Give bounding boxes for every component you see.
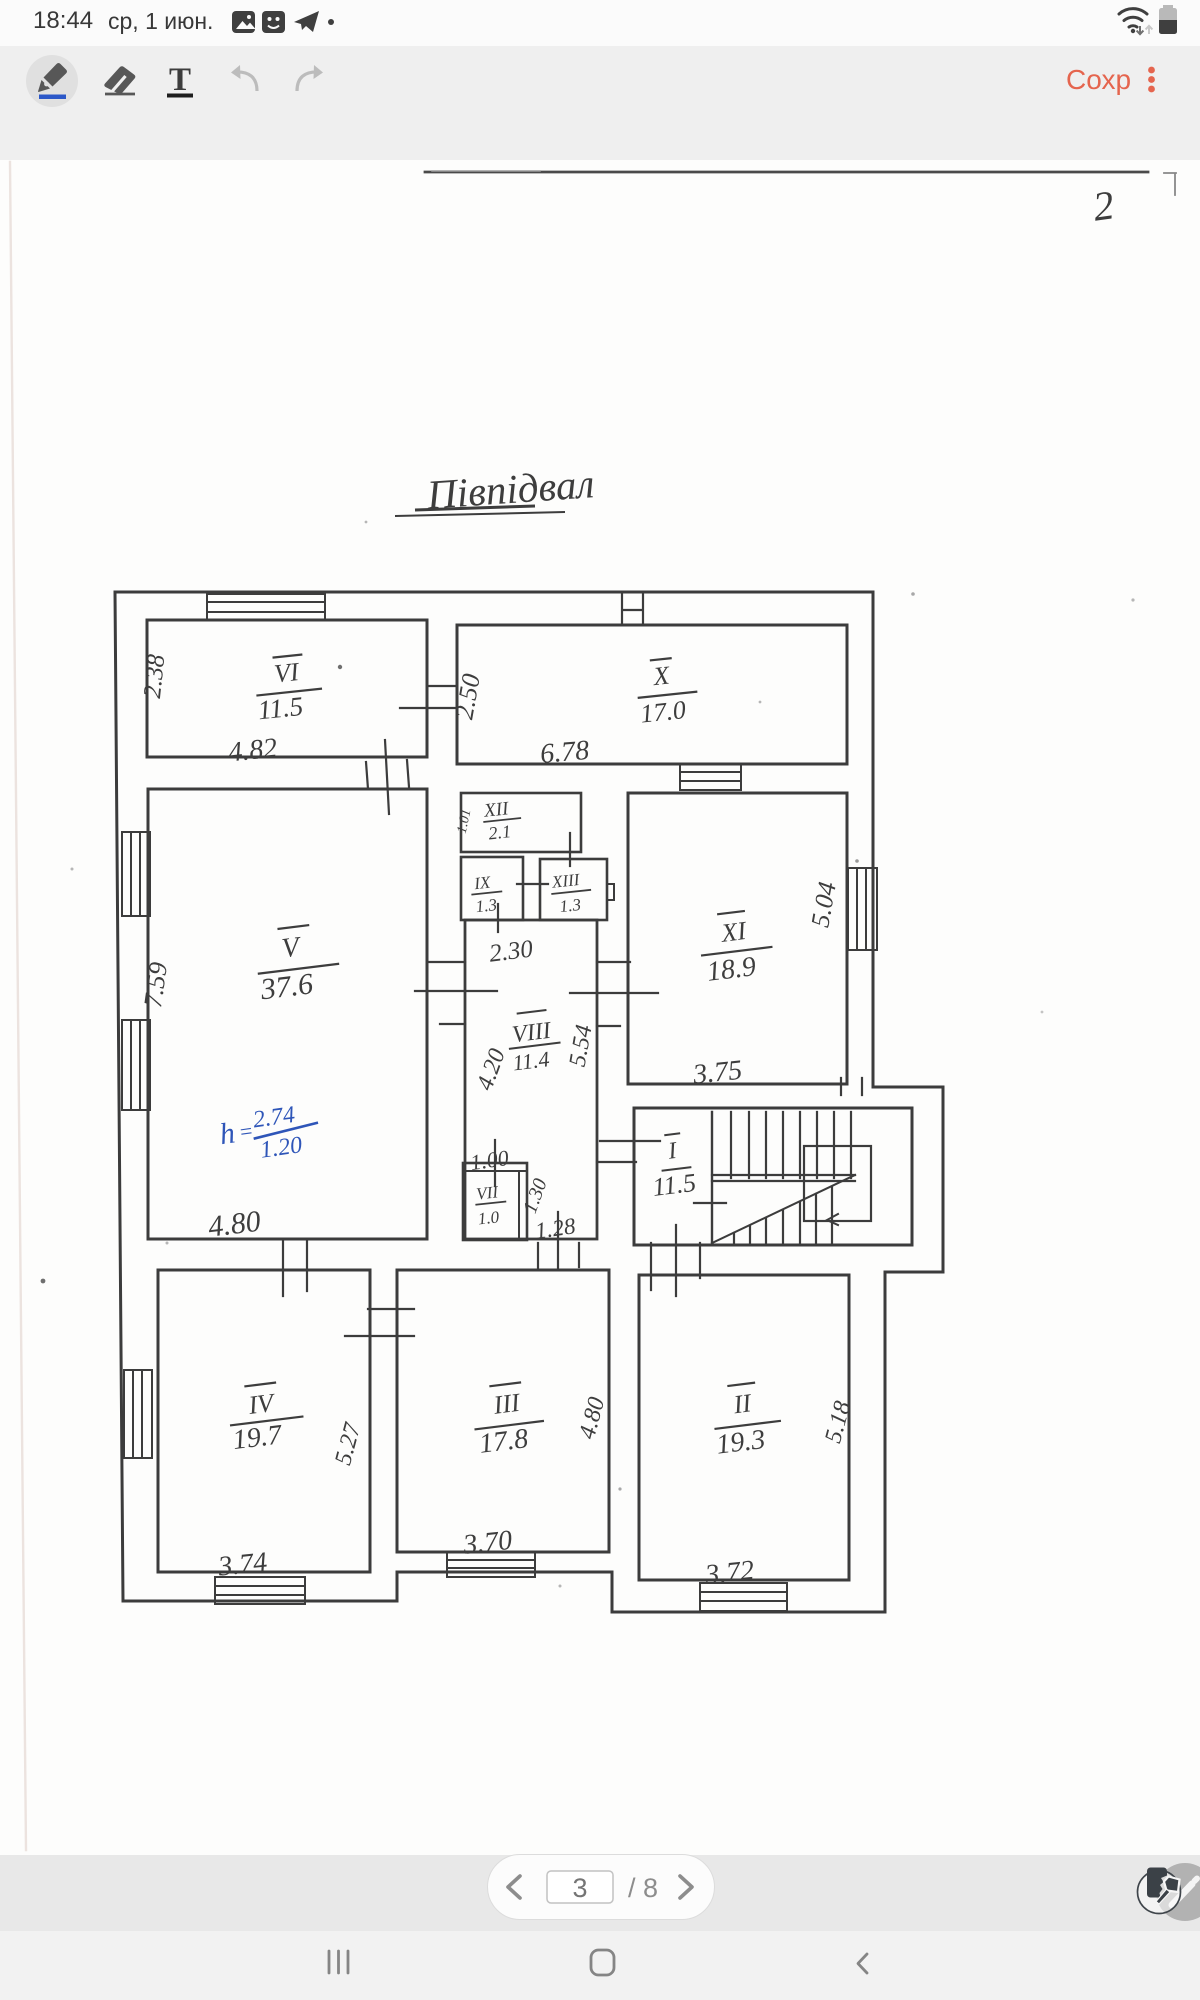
svg-text:1.30: 1.30 <box>519 1176 552 1216</box>
svg-text:5.27: 5.27 <box>330 1420 366 1468</box>
svg-text:11.5: 11.5 <box>256 691 304 726</box>
svg-text:11.5: 11.5 <box>651 1168 698 1202</box>
svg-text:V: V <box>280 931 304 964</box>
svg-text:3: 3 <box>572 1873 587 1903</box>
svg-text:11.4: 11.4 <box>511 1046 551 1075</box>
svg-text:I: I <box>666 1138 679 1165</box>
svg-text:4.82: 4.82 <box>227 733 279 769</box>
svg-text:1.20: 1.20 <box>259 1132 304 1164</box>
svg-text:1.01: 1.01 <box>455 808 475 835</box>
svg-text:VI: VI <box>273 657 302 689</box>
svg-text:2.38: 2.38 <box>139 653 170 700</box>
svg-text:XIII: XIII <box>550 870 582 892</box>
svg-text:37.6: 37.6 <box>258 967 315 1006</box>
svg-text:19.7: 19.7 <box>231 1419 284 1456</box>
svg-text:5.18: 5.18 <box>820 1399 856 1446</box>
svg-text:h: h <box>217 1116 236 1151</box>
svg-text:2.1: 2.1 <box>488 821 512 843</box>
svg-text:4.80: 4.80 <box>206 1205 262 1244</box>
svg-text:17.0: 17.0 <box>639 695 687 729</box>
svg-text:5.04: 5.04 <box>805 880 841 930</box>
svg-text:4.80: 4.80 <box>574 1395 610 1442</box>
svg-text:17.8: 17.8 <box>477 1423 529 1460</box>
svg-text:2.50: 2.50 <box>449 672 485 722</box>
svg-text:3.74: 3.74 <box>216 1547 269 1583</box>
svg-text:1.0: 1.0 <box>477 1207 501 1228</box>
svg-text:6.78: 6.78 <box>539 735 591 770</box>
svg-text:3.72: 3.72 <box>703 1555 756 1591</box>
svg-text:VII: VII <box>475 1182 500 1203</box>
svg-text:/ 8: / 8 <box>628 1873 658 1903</box>
svg-text:18.9: 18.9 <box>705 951 757 988</box>
svg-text:XII: XII <box>482 798 511 822</box>
svg-text:19.3: 19.3 <box>715 1424 767 1461</box>
svg-text:5.54: 5.54 <box>565 1023 598 1069</box>
svg-text:T: T <box>169 62 191 98</box>
svg-text:X: X <box>651 660 672 691</box>
svg-text:IX: IX <box>472 873 492 894</box>
svg-text:1.3: 1.3 <box>559 895 582 916</box>
svg-text:1.00: 1.00 <box>469 1145 511 1175</box>
svg-text:3.75: 3.75 <box>691 1055 744 1091</box>
svg-text:3.70: 3.70 <box>461 1525 514 1561</box>
svg-text:IV: IV <box>246 1388 278 1420</box>
svg-text:III: III <box>491 1388 523 1420</box>
svg-text:7.59: 7.59 <box>138 960 173 1009</box>
svg-text:XI: XI <box>719 916 749 948</box>
svg-text:2: 2 <box>1090 181 1117 229</box>
svg-text:2.30: 2.30 <box>488 935 535 967</box>
svg-text:II: II <box>731 1388 754 1419</box>
svg-text:1.3: 1.3 <box>475 895 498 916</box>
svg-text:4.20: 4.20 <box>472 1045 511 1093</box>
